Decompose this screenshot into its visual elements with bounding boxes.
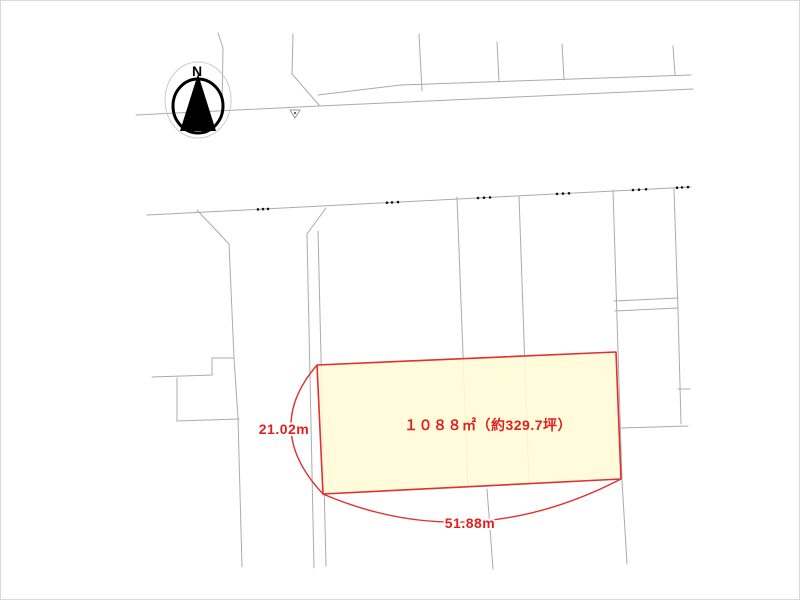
boundary-point [391,201,394,204]
boundary-point [632,189,635,192]
boundary-point [257,208,260,211]
cadastral-map-canvas: １０８８㎡（約329.7坪） 21.02m 51.88m N [0,0,800,600]
survey-baseline [147,187,691,215]
boundary-point [568,192,571,195]
boundary-point [676,186,679,189]
building-outline [177,378,239,421]
boundary-line [614,298,678,301]
depth-dimension-label: 21.02m [259,421,309,437]
north-compass: N [165,62,231,138]
boundary-line [292,34,319,105]
frontage-dimension-label: 51.88m [445,515,495,531]
boundary-line [673,46,675,75]
boundary-line [197,210,242,567]
boundary-point [397,201,400,204]
boundary-point [489,196,492,199]
boundary-point [681,186,684,189]
boundary-point [562,192,565,195]
benchmark-dot [294,112,296,114]
building-outline [152,358,234,377]
survey-map-svg: １０８８㎡（約329.7坪） 21.02m 51.88m N [1,1,800,600]
boundary-line [562,44,564,80]
parcel-area-label: １０８８㎡（約329.7坪） [404,417,572,433]
boundary-point [645,188,648,191]
boundary-line [615,308,678,311]
boundary-line [497,42,499,82]
boundary-point [267,208,270,211]
boundary-point [386,201,389,204]
benchmark-marker [290,110,300,118]
boundary-point [483,196,486,199]
boundary-point [687,186,690,189]
boundary-line [621,426,688,428]
boundary-point [638,188,641,191]
boundary-point [556,193,559,196]
north-label: N [192,63,202,79]
boundary-point [477,197,480,200]
boundary-line [419,34,422,91]
boundary-point [262,208,265,211]
